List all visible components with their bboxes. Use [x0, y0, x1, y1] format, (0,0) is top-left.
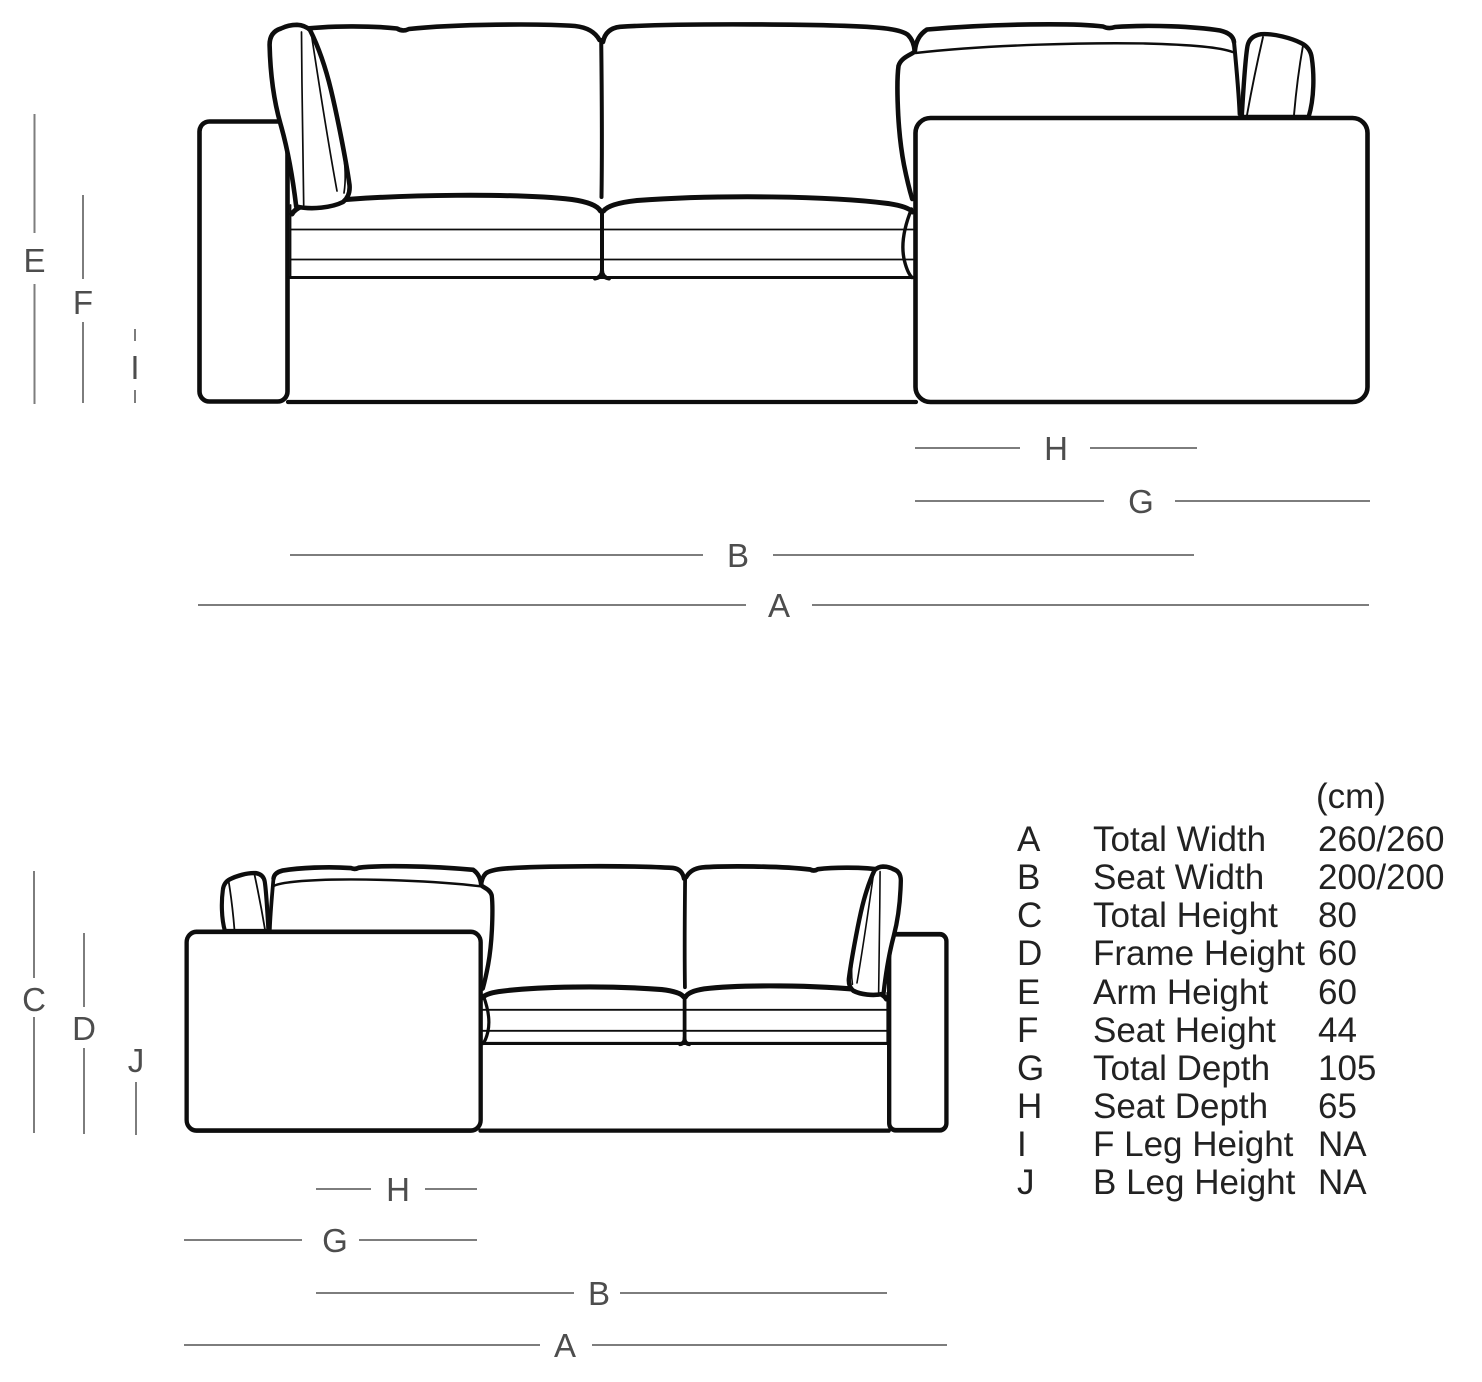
svg-text:I: I [130, 349, 139, 386]
svg-text:200/200: 200/200 [1318, 858, 1445, 897]
svg-text:J: J [128, 1042, 145, 1079]
svg-text:B: B [727, 537, 749, 574]
svg-text:I: I [1017, 1125, 1027, 1164]
svg-text:E: E [1017, 973, 1040, 1012]
svg-text:Total Depth: Total Depth [1093, 1049, 1270, 1088]
svg-text:F: F [73, 284, 93, 321]
svg-text:105: 105 [1318, 1049, 1376, 1088]
svg-text:Total Height: Total Height [1093, 896, 1278, 935]
svg-text:E: E [23, 242, 45, 279]
svg-text:Seat Width: Seat Width [1093, 858, 1264, 897]
svg-text:H: H [1044, 430, 1068, 467]
svg-text:A: A [554, 1327, 576, 1364]
svg-text:H: H [1017, 1087, 1042, 1126]
svg-text:G: G [1128, 483, 1154, 520]
svg-text:260/260: 260/260 [1318, 820, 1445, 859]
svg-text:D: D [1017, 934, 1042, 973]
svg-text:C: C [1017, 896, 1042, 935]
svg-text:NA: NA [1318, 1163, 1367, 1202]
svg-text:B Leg Height: B Leg Height [1093, 1163, 1296, 1202]
svg-text:J: J [1017, 1163, 1035, 1202]
svg-text:F: F [1017, 1011, 1038, 1050]
svg-text:44: 44 [1318, 1011, 1357, 1050]
svg-text:D: D [72, 1010, 96, 1047]
svg-text:G: G [322, 1222, 348, 1259]
svg-text:F Leg Height: F Leg Height [1093, 1125, 1294, 1164]
svg-text:60: 60 [1318, 973, 1357, 1012]
svg-text:A: A [768, 587, 790, 624]
svg-text:Arm Height: Arm Height [1093, 973, 1268, 1012]
svg-text:Frame Height: Frame Height [1093, 934, 1305, 973]
svg-text:Total Width: Total Width [1093, 820, 1266, 859]
svg-text:NA: NA [1318, 1125, 1367, 1164]
svg-text:60: 60 [1318, 934, 1357, 973]
svg-text:65: 65 [1318, 1087, 1357, 1126]
svg-text:B: B [588, 1275, 610, 1312]
svg-text:Seat Depth: Seat Depth [1093, 1087, 1268, 1126]
svg-text:B: B [1017, 858, 1040, 897]
svg-text:80: 80 [1318, 896, 1357, 935]
svg-text:G: G [1017, 1049, 1044, 1088]
svg-text:(cm): (cm) [1316, 777, 1386, 816]
svg-text:C: C [22, 981, 46, 1018]
svg-text:H: H [386, 1171, 410, 1208]
svg-text:Seat Height: Seat Height [1093, 1011, 1276, 1050]
svg-text:A: A [1017, 820, 1041, 859]
